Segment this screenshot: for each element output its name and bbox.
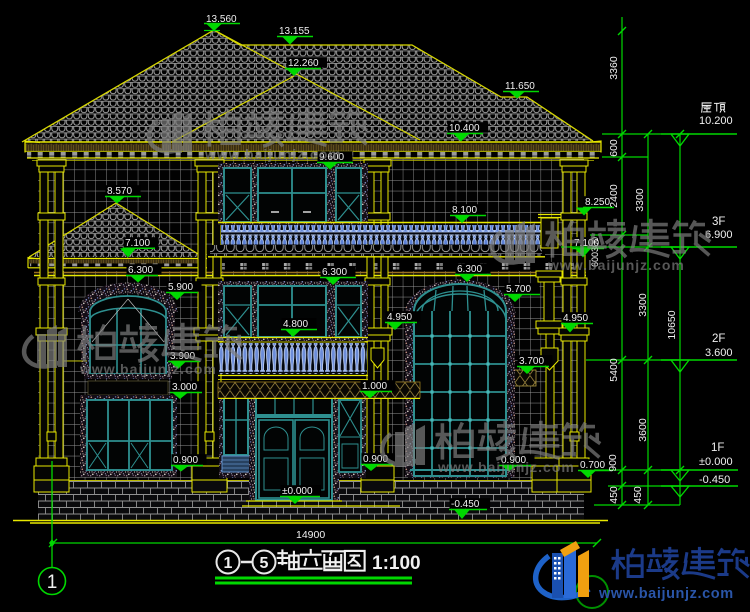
svg-text:1.000: 1.000 [362,381,387,392]
svg-text:0.900: 0.900 [173,455,198,466]
svg-text:6.300: 6.300 [457,264,482,275]
svg-text:6.300: 6.300 [322,267,347,278]
svg-text:1: 1 [47,572,58,593]
svg-text:10650: 10650 [666,310,678,339]
svg-text:4.950: 4.950 [387,312,412,323]
svg-text:1F: 1F [711,442,724,454]
svg-text:6.300: 6.300 [128,265,153,276]
svg-text:450: 450 [608,486,620,504]
svg-text:3.700: 3.700 [519,356,544,367]
svg-text:3300: 3300 [637,293,649,317]
svg-text:2F: 2F [712,333,725,345]
svg-text:1: 1 [224,555,233,572]
svg-text:5.900: 5.900 [168,282,193,293]
svg-text:5.700: 5.700 [506,284,531,295]
svg-text:0.700: 0.700 [580,460,605,471]
svg-text:10.400: 10.400 [449,123,480,134]
svg-text:600: 600 [608,139,620,157]
svg-text:-0.450: -0.450 [699,474,730,486]
svg-text:8.100: 8.100 [452,205,477,216]
svg-text:14900: 14900 [296,529,325,541]
svg-text:7.100: 7.100 [125,238,150,249]
svg-text:3300: 3300 [634,188,646,212]
svg-text:3360: 3360 [608,56,620,80]
svg-text:±0.000: ±0.000 [282,486,313,497]
svg-text:3600: 3600 [637,418,649,442]
svg-text:3F: 3F [712,216,725,228]
svg-text:3.600: 3.600 [705,347,733,359]
svg-text:8.250: 8.250 [585,197,610,208]
svg-text:10.200: 10.200 [699,115,733,127]
svg-text:450: 450 [632,486,644,504]
svg-text:2400: 2400 [608,184,620,208]
svg-text:1:100: 1:100 [372,553,421,574]
svg-text:5400: 5400 [608,358,620,382]
svg-text:3.000: 3.000 [172,382,197,393]
svg-text:-0.450: -0.450 [451,499,480,510]
svg-text:13.155: 13.155 [279,26,310,37]
svg-text:4.800: 4.800 [283,319,308,330]
svg-text:12.260: 12.260 [288,58,319,69]
svg-text:±0.000: ±0.000 [699,456,733,468]
svg-text:900: 900 [607,454,619,472]
svg-text:4.950: 4.950 [563,313,588,324]
svg-text:www.baijunjz.com: www.baijunjz.com [598,586,734,602]
svg-text:5: 5 [260,555,269,572]
svg-text:11.650: 11.650 [505,81,535,92]
svg-text:8.570: 8.570 [107,186,132,197]
